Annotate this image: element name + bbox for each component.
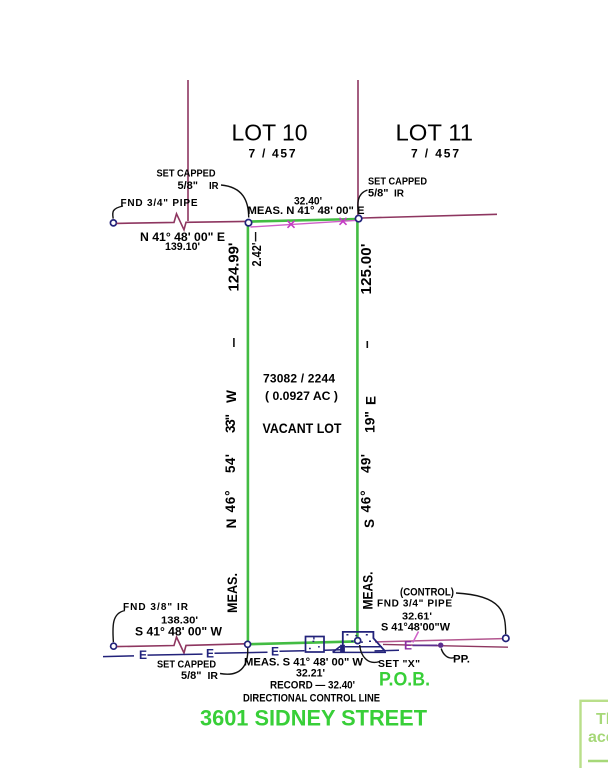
svg-text:P.O.B.: P.O.B. [379,670,430,691]
svg-text:SET CAPPED: SET CAPPED [157,167,216,179]
svg-text:MEAS.: MEAS. [361,572,376,610]
svg-text:VACANT LOT: VACANT LOT [263,421,343,436]
svg-text:46°: 46° [359,491,374,513]
svg-text:S 41°48'00"W: S 41°48'00"W [381,622,450,634]
svg-text:7 / 457: 7 / 457 [249,146,296,160]
svg-text:FND 3/4" PIPE: FND 3/4" PIPE [121,198,198,209]
svg-text:E: E [404,638,412,652]
svg-text:5/8": 5/8" [178,180,199,192]
svg-text:3601 SIDNEY STREET: 3601 SIDNEY STREET [200,706,427,731]
svg-text:RECORD — 32.40': RECORD — 32.40' [270,680,355,692]
svg-text:54': 54' [223,454,238,473]
svg-text:FND 3/4" PIPE: FND 3/4" PIPE [377,599,452,610]
svg-text:139.10': 139.10' [165,241,200,253]
svg-text:46°: 46° [223,491,238,513]
svg-text:S: S [362,519,377,528]
svg-text:MEAS. N 41° 48' 00" E: MEAS. N 41° 48' 00" E [248,205,366,217]
svg-text:49': 49' [359,454,374,473]
svg-text:124.99': 124.99' [226,243,243,292]
svg-text:7 / 457: 7 / 457 [411,146,459,160]
svg-text:LOT 10: LOT 10 [232,120,308,146]
svg-text:32.21': 32.21' [296,668,325,680]
svg-text:IR: IR [208,671,219,682]
svg-text:N: N [224,519,239,529]
svg-text:S 41° 48' 00" W: S 41° 48' 00" W [135,626,223,639]
svg-text:The: The [596,711,608,728]
svg-text:IR: IR [394,189,405,200]
svg-text:19": 19" [363,411,378,433]
svg-text:W: W [224,390,239,403]
svg-text:( 0.0927 AC ): ( 0.0927 AC ) [265,391,338,403]
svg-text:73082 / 2244: 73082 / 2244 [263,372,335,386]
svg-text:5/8": 5/8" [181,670,202,682]
svg-text:LOT 11: LOT 11 [396,120,474,146]
svg-text:E: E [139,648,147,662]
svg-text:PP.: PP. [453,654,470,666]
svg-text:2.42': 2.42' [249,243,264,267]
svg-text:MEAS.: MEAS. [225,573,240,613]
svg-text:FND 3/8" IR: FND 3/8" IR [123,602,189,613]
svg-text:SET "X": SET "X" [378,659,420,670]
svg-text:DIRECTIONAL CONTROL LINE: DIRECTIONAL CONTROL LINE [243,693,380,705]
svg-text:33": 33" [223,414,238,433]
svg-text:SET CAPPED: SET CAPPED [157,658,216,670]
svg-text:125.00': 125.00' [358,244,375,295]
svg-text:acc: acc [588,729,608,746]
svg-text:IR: IR [209,181,219,192]
svg-text:E: E [364,396,379,405]
svg-text:SET CAPPED: SET CAPPED [368,176,427,188]
svg-text:5/8": 5/8" [368,188,389,200]
svg-text:(CONTROL): (CONTROL) [400,587,454,599]
